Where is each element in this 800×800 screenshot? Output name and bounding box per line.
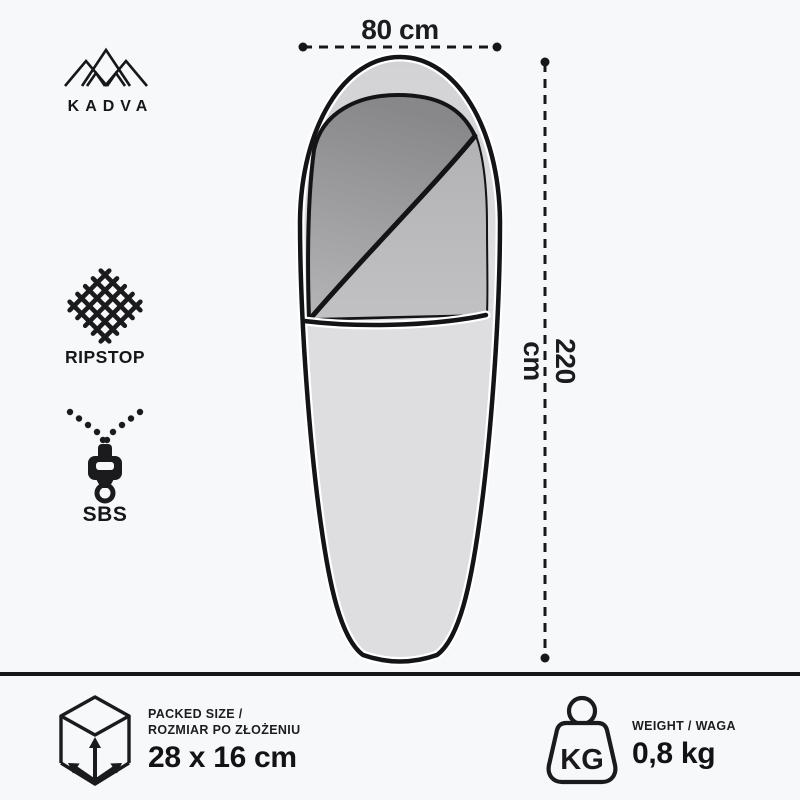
- packed-size-value: 28 x 16 cm: [148, 741, 297, 775]
- weight-value: 0,8 kg: [632, 737, 715, 771]
- mountains-icon: [45, 42, 170, 92]
- feature-label-ripstop: RIPSTOP: [44, 347, 166, 368]
- brand-name: KADVA: [40, 98, 175, 116]
- packed-size-label-en: PACKED SIZE /: [148, 707, 300, 723]
- zipper-icon: [58, 402, 153, 507]
- infographic-canvas: KADVA 80 cm 220 cm RIPSTOP: [0, 0, 800, 800]
- weight-label: WEIGHT / WAGA: [632, 719, 736, 735]
- feature-label-sbs: SBS: [45, 503, 165, 527]
- divider-line: [0, 672, 800, 676]
- packed-size-cube-icon: [50, 690, 145, 792]
- length-dimension-label: 220 cm: [553, 316, 581, 406]
- sleeping-bag-illustration: [0, 0, 800, 800]
- packed-size-label-pl: ROZMIAR PO ZŁOŻENIU: [148, 723, 300, 739]
- width-dimension-label: 80 cm: [340, 14, 460, 46]
- packed-size-label: PACKED SIZE / ROZMIAR PO ZŁOŻENIU: [148, 707, 300, 738]
- kg-icon-text: KG: [552, 744, 612, 777]
- ripstop-weave-icon: [58, 260, 153, 355]
